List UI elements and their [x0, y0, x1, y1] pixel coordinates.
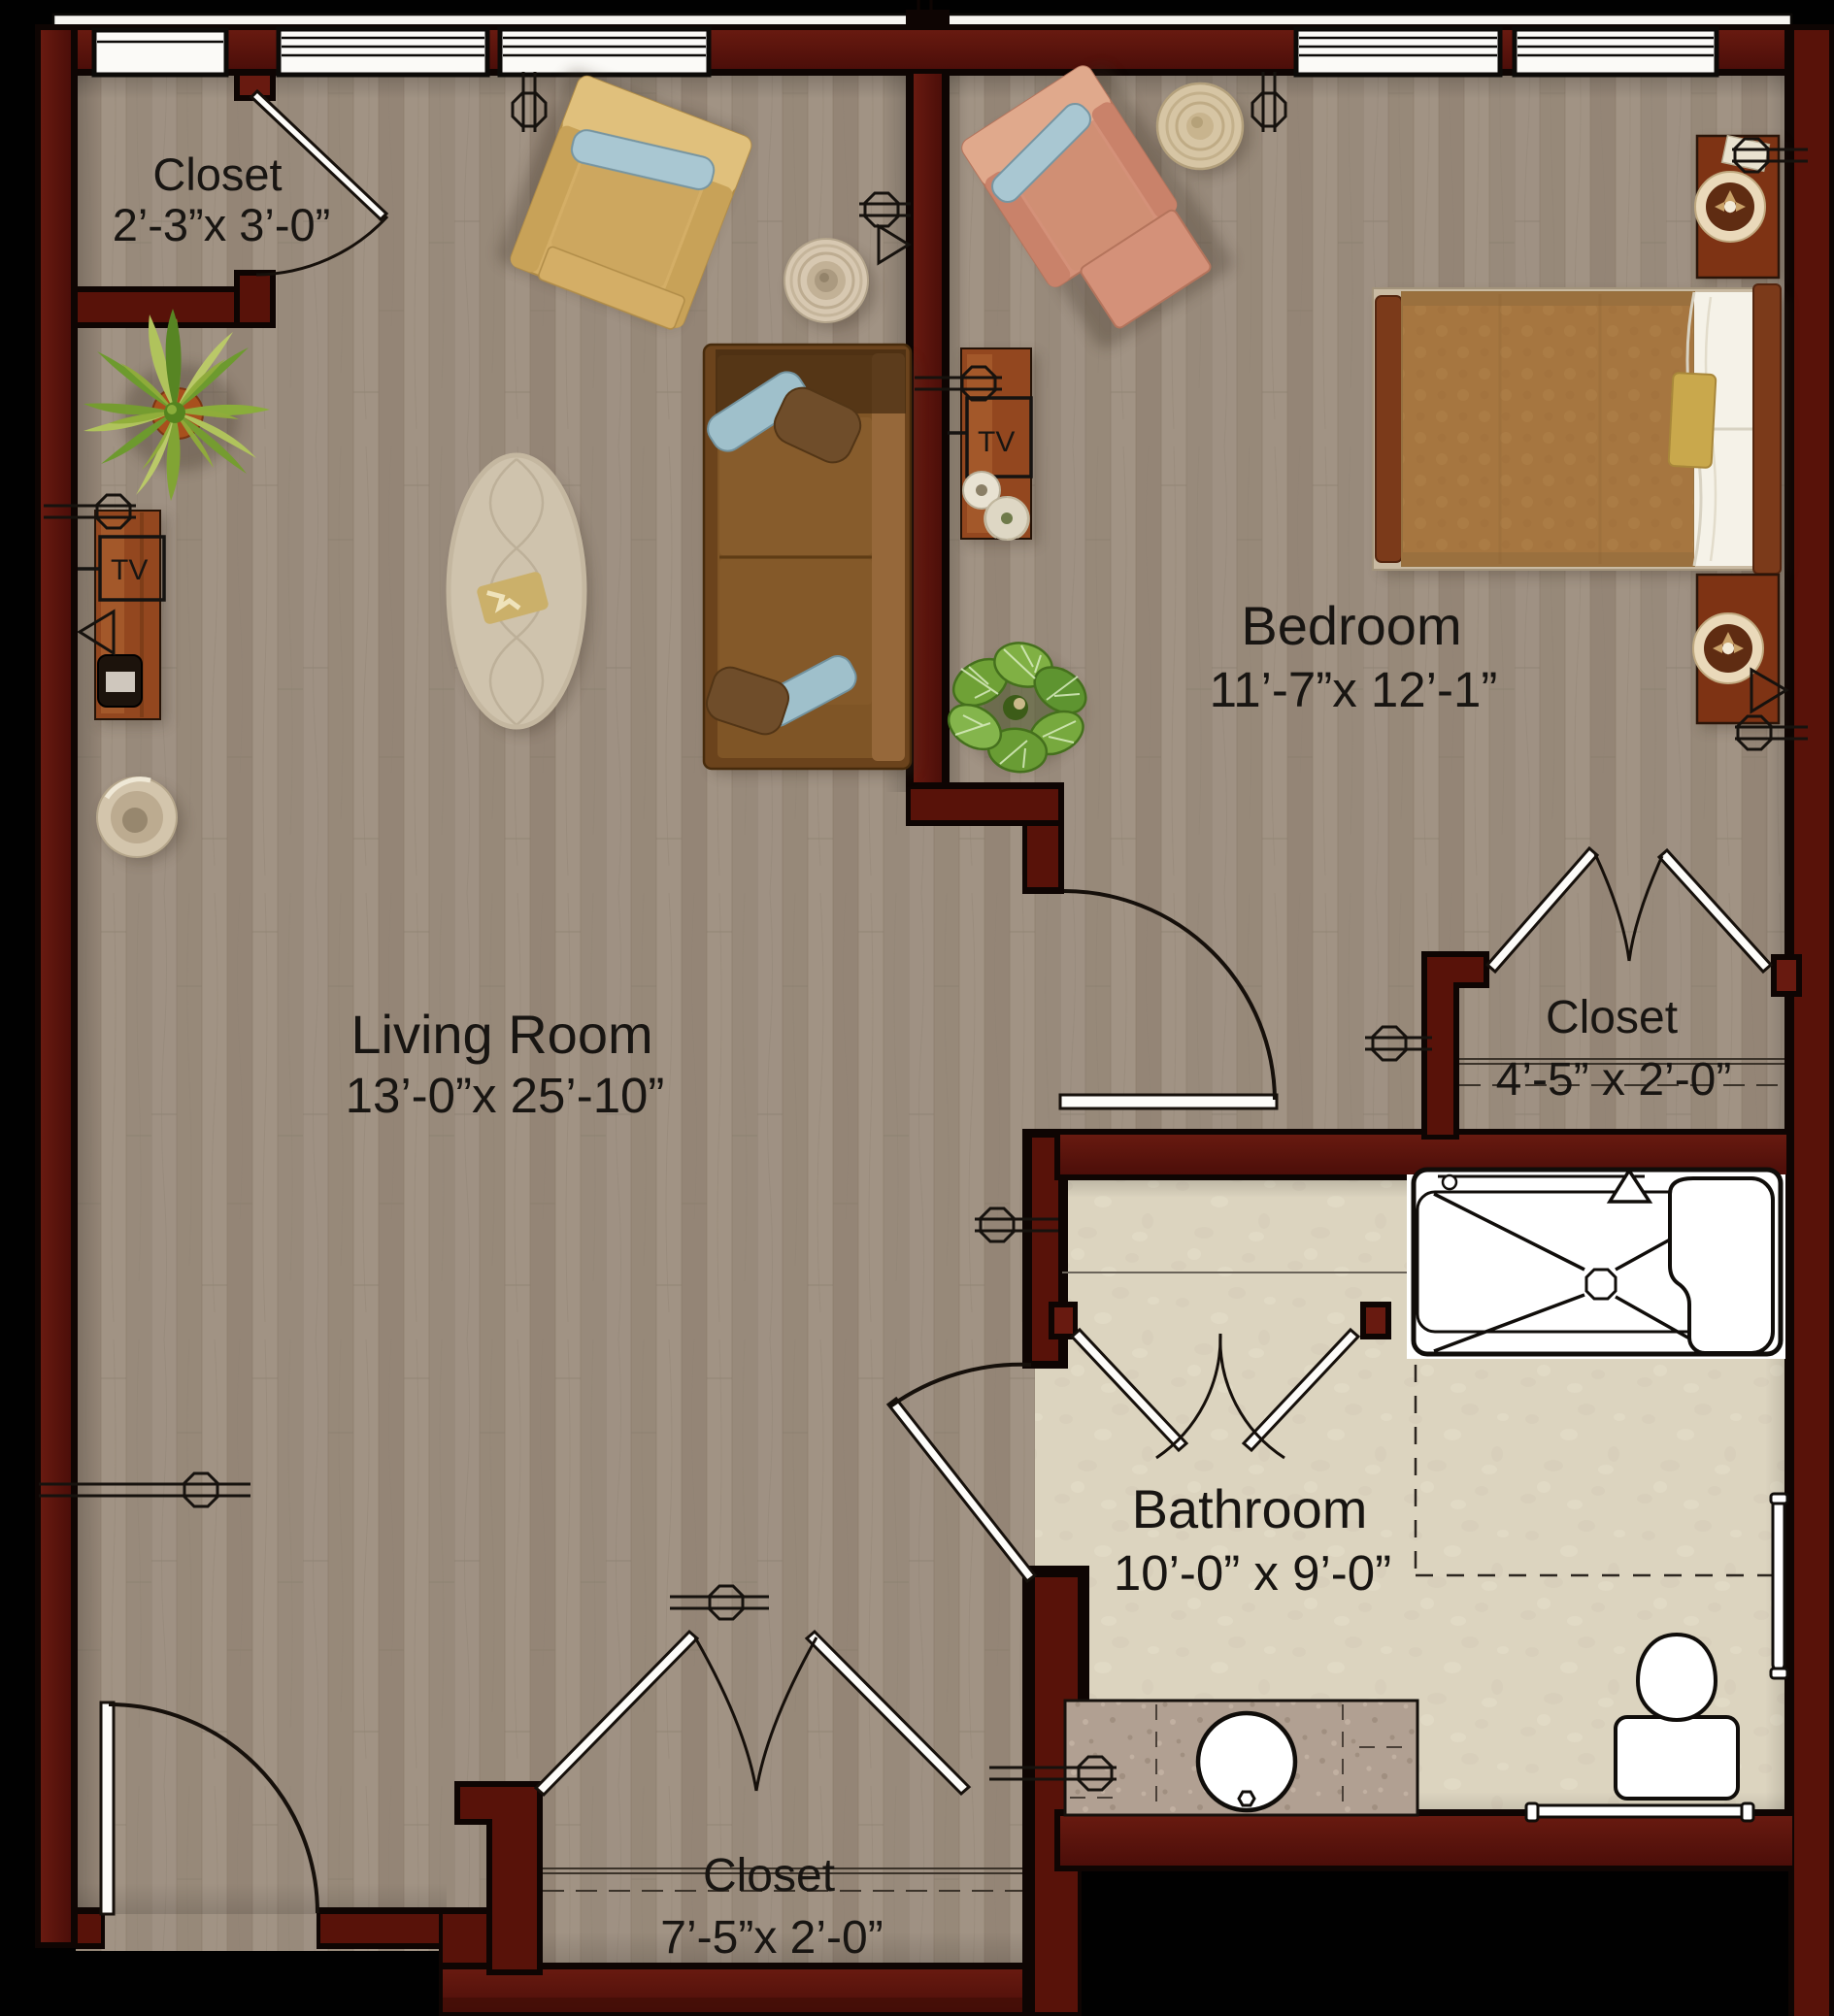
svg-text:11’-7”x 12’-1”: 11’-7”x 12’-1”	[1210, 662, 1498, 717]
svg-text:Living Room: Living Room	[350, 1004, 652, 1065]
svg-text:TV: TV	[111, 554, 148, 586]
svg-text:13’-0”x 25’-10”: 13’-0”x 25’-10”	[346, 1068, 665, 1123]
svg-text:Bedroom: Bedroom	[1241, 595, 1461, 656]
svg-text:2’-3”x 3’-0”: 2’-3”x 3’-0”	[113, 199, 331, 250]
svg-text:10’-0” x 9’-0”: 10’-0” x 9’-0”	[1114, 1545, 1391, 1601]
svg-text:Closet: Closet	[152, 149, 282, 200]
svg-text:Bathroom: Bathroom	[1132, 1478, 1368, 1539]
svg-text:4’-5” x 2’-0”: 4’-5” x 2’-0”	[1496, 1054, 1732, 1106]
svg-text:7’-5”x 2’-0”: 7’-5”x 2’-0”	[660, 1912, 883, 1964]
svg-text:Closet: Closet	[1546, 992, 1678, 1043]
svg-text:TV: TV	[978, 426, 1015, 458]
svg-text:Closet: Closet	[703, 1850, 835, 1901]
